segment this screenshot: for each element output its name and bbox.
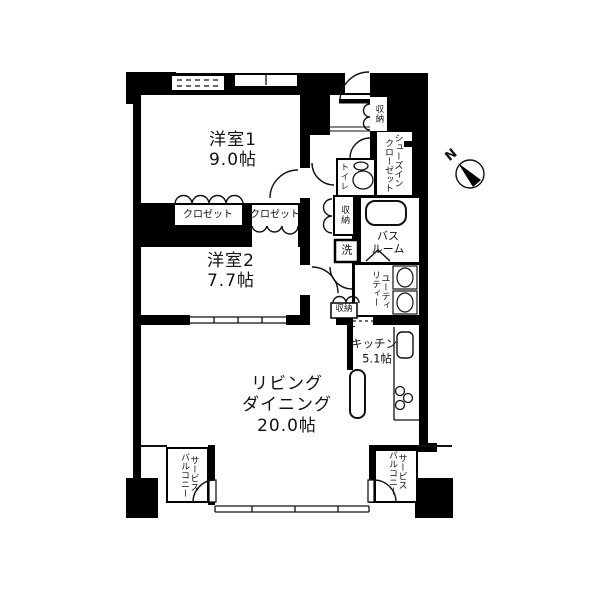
- living-dining-label-2: ダイニング: [242, 396, 332, 416]
- living-dining-size-label: 20.0帖: [257, 417, 317, 437]
- room2-name-label: 洋室2: [207, 252, 255, 272]
- pillar-bottom-left: [126, 478, 158, 518]
- kitchen-name-label: キッチン: [351, 337, 397, 350]
- storage-entrance-label: 収納: [373, 105, 383, 124]
- closet2-label: クロゼット: [250, 209, 300, 221]
- kitchen-size-label: 5.1帖: [362, 352, 392, 365]
- washer-label: 洗: [342, 245, 353, 258]
- service-balcony-right-label: サービス バルコニー: [387, 451, 406, 496]
- door-leaf-balcony-right: [368, 480, 374, 502]
- bathroom-label-2: ルーム: [372, 244, 405, 257]
- living-dining-label-1: リビング: [251, 375, 323, 395]
- pillar-bottom-right: [415, 478, 453, 518]
- storage-hall-label: 収納: [339, 205, 349, 225]
- room1-size-label: 9.0帖: [209, 151, 257, 171]
- wall-top-right: [370, 73, 428, 95]
- bathroom-label-1: バス: [377, 231, 399, 244]
- wall-stub-shoes-closet: [404, 141, 419, 147]
- service-balcony-left-label: サービス バルコニー: [179, 453, 198, 498]
- shoes-in-closet-label: シューズイン クローゼット: [383, 134, 402, 193]
- room2-size-label: 7.7帖: [207, 272, 255, 292]
- floorplan-canvas: 洋室1 9.0帖 クロゼット クロゼット 洋室2 7.7帖 リビング ダイニング…: [0, 0, 608, 604]
- door-leaf-balcony-left: [209, 480, 216, 502]
- compass-needle: [458, 163, 481, 187]
- sliding-door-room2-living: [190, 317, 286, 323]
- storage-ld-label: 収納: [335, 305, 352, 315]
- toilet-label: トイレ: [338, 163, 348, 192]
- room1-name-label: 洋室1: [209, 131, 257, 151]
- compass-icon: [456, 160, 484, 188]
- utility-label: ユーティ リティー: [370, 271, 389, 310]
- wall-west: [133, 95, 141, 480]
- wall-east: [419, 325, 428, 445]
- entrance-door-leaf: [339, 99, 370, 104]
- floorplan-drawing: [0, 0, 608, 604]
- closet1-label: クロゼット: [183, 209, 233, 221]
